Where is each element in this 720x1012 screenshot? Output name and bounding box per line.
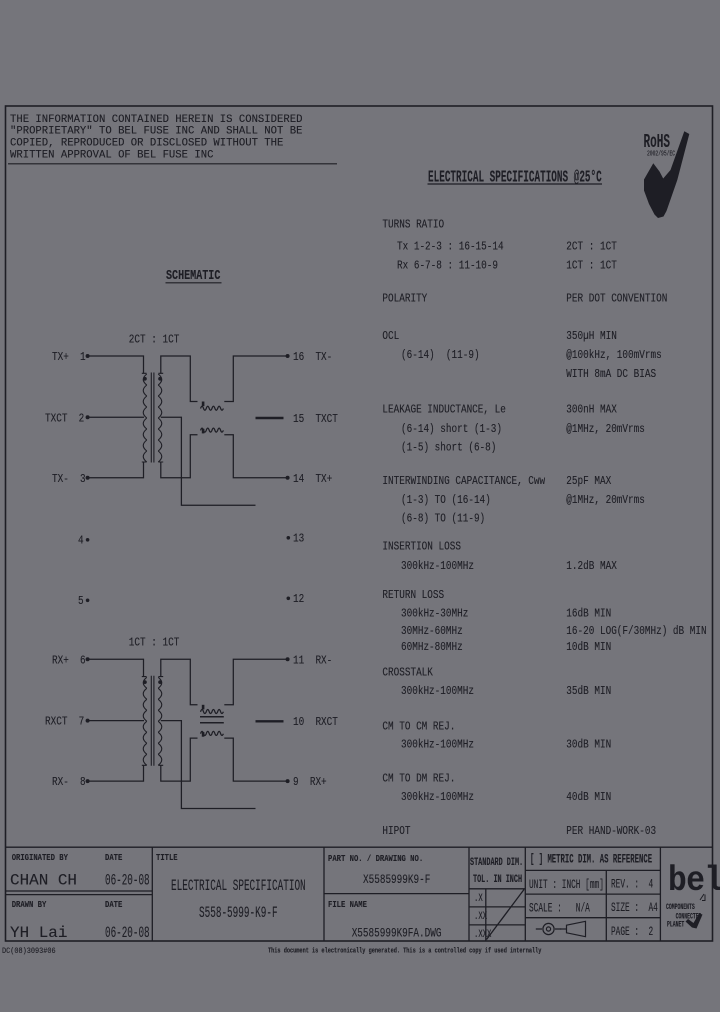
svg-text:PART NO. / DRAWING NO.: PART NO. / DRAWING NO. [328,853,423,864]
svg-text:35dB MIN: 35dB MIN [566,685,611,698]
svg-text:DATE: DATE [105,852,122,863]
svg-text:16dB MIN: 16dB MIN [566,607,611,620]
svg-text:40dB MIN: 40dB MIN [566,791,611,804]
svg-text:300kHz-30MHz: 300kHz-30MHz [401,607,468,620]
svg-text:(6-14) (11-9): (6-14) (11-9) [401,349,480,362]
svg-text:PER HAND-WORK-03: PER HAND-WORK-03 [566,825,656,838]
svg-text:SIZE : A4: SIZE : A4 [611,901,658,916]
svg-text:POLARITY: POLARITY [382,292,427,305]
svg-text:(1-3) TO (16-14): (1-3) TO (16-14) [401,494,491,507]
svg-text:2002/95/EC: 2002/95/EC [647,150,675,158]
svg-text:2CT : 1CT: 2CT : 1CT [566,240,617,253]
svg-text:(6-14) short (1-3): (6-14) short (1-3) [401,423,502,436]
svg-text:14 TX+: 14 TX+ [293,473,332,486]
svg-text:STANDARD DIM.: STANDARD DIM. [470,855,523,868]
svg-text:300nH MAX: 300nH MAX [566,403,617,416]
svg-text:TXCT 2: TXCT 2 [45,412,84,425]
svg-text:TX- 3: TX- 3 [52,473,86,486]
svg-text:16 TX-: 16 TX- [293,351,332,364]
svg-text:10 RXCT: 10 RXCT [293,716,338,729]
svg-text:.X: .X [474,892,483,905]
svg-text:RX- 8: RX- 8 [52,776,86,789]
svg-text:THE INFORMATION CONTAINED HERE: THE INFORMATION CONTAINED HEREIN IS CONS… [10,114,302,126]
svg-text:RETURN LOSS: RETURN LOSS [382,589,444,602]
svg-text:@100kHz, 100mVrms: @100kHz, 100mVrms [566,349,661,362]
svg-text:OCL: OCL [382,330,399,343]
svg-text:S558-5999-K9-F: S558-5999-K9-F [199,904,278,922]
svg-text:30MHz-60MHz: 30MHz-60MHz [401,625,463,638]
svg-text:PER DOT CONVENTION: PER DOT CONVENTION [566,292,667,305]
svg-text:350µH MIN: 350µH MIN [566,330,617,343]
svg-text:Rx 6-7-8 : 11-10-9: Rx 6-7-8 : 11-10-9 [397,259,498,272]
svg-text:12: 12 [293,593,304,606]
svg-text:TOL. IN INCH: TOL. IN INCH [473,872,522,885]
svg-text:10dB MIN: 10dB MIN [566,641,611,654]
svg-text:300kHz-100MHz: 300kHz-100MHz [401,560,474,573]
svg-text:WRITTEN APPROVAL OF BEL FUSE I: WRITTEN APPROVAL OF BEL FUSE INC [10,150,213,162]
svg-text:ELECTRICAL SPECIFICATIONS @25°: ELECTRICAL SPECIFICATIONS @25°C [428,168,602,188]
svg-text:INSERTION LOSS: INSERTION LOSS [382,540,461,553]
svg-text:1CT : 1CT: 1CT : 1CT [129,637,180,650]
svg-text:SCALE : N/A: SCALE : N/A [529,902,590,917]
svg-text:300kHz-100MHz: 300kHz-100MHz [401,791,474,804]
svg-text:PAGE : 2: PAGE : 2 [611,925,653,940]
svg-text:06-20-08: 06-20-08 [105,871,150,889]
svg-text:TITLE: TITLE [156,852,178,863]
svg-text:CM TO DM REJ.: CM TO DM REJ. [382,772,455,785]
svg-text:ELECTRICAL SPECIFICATION: ELECTRICAL SPECIFICATION [171,877,306,895]
svg-text:@1MHz, 20mVrms: @1MHz, 20mVrms [566,494,645,507]
svg-text:SCHEMATIC: SCHEMATIC [166,268,220,284]
svg-text:FILE NAME: FILE NAME [328,899,367,910]
svg-text:WITH 8mA DC BIAS: WITH 8mA DC BIAS [566,368,656,381]
svg-text:300kHz-100MHz: 300kHz-100MHz [401,685,474,698]
svg-text:TX+ 1: TX+ 1 [52,351,86,364]
svg-text:25pF MAX: 25pF MAX [566,475,611,488]
svg-text:UNIT : INCH [mm]: UNIT : INCH [mm] [529,878,604,893]
svg-text:11 RX-: 11 RX- [293,654,332,667]
svg-text:13: 13 [293,533,304,546]
svg-text:15 TXCT: 15 TXCT [293,413,338,426]
svg-text:X5585999K9-F: X5585999K9-F [363,874,430,888]
svg-text:DRAWN BY: DRAWN BY [12,899,47,910]
svg-text:PLANET: PLANET [667,921,684,929]
svg-text:COPIED, REPRODUCED OR DISCLOSE: COPIED, REPRODUCED OR DISCLOSED WITHOUT … [10,138,283,150]
svg-text:.XX: .XX [474,910,487,923]
svg-text:INTERWINDING CAPACITANCE, Cww: INTERWINDING CAPACITANCE, Cww [382,475,545,488]
svg-text:Tx 1-2-3 : 16-15-14: Tx 1-2-3 : 16-15-14 [397,240,504,253]
svg-text:bel: bel [668,860,720,900]
svg-text:This document is electronicall: This document is electronically generate… [268,947,542,955]
svg-text:X5585999K9FA.DWG: X5585999K9FA.DWG [352,927,442,941]
svg-text:(6-8) TO (11-9): (6-8) TO (11-9) [401,512,485,525]
svg-text:TURNS RATIO: TURNS RATIO [382,218,444,231]
svg-text:DC(08)3093#06: DC(08)3093#06 [2,947,56,956]
svg-text:LEAKAGE INDUCTANCE, Le: LEAKAGE INDUCTANCE, Le [382,403,505,416]
svg-text:1CT : 1CT: 1CT : 1CT [566,259,617,272]
svg-text:DATE: DATE [105,899,122,910]
svg-text:2CT : 1CT: 2CT : 1CT [129,333,180,346]
svg-text:[ ] METRIC DIM. AS REFERENCE: [ ] METRIC DIM. AS REFERENCE [530,853,652,868]
svg-text:CM TO CM REJ.: CM TO CM REJ. [382,720,455,733]
svg-text:RXCT 7: RXCT 7 [45,716,84,729]
svg-text:"PROPRIETARY" TO BEL FUSE INC: "PROPRIETARY" TO BEL FUSE INC AND SHALL … [10,126,302,138]
svg-text:CHAN CH: CHAN CH [10,871,77,889]
svg-text:06-20-08: 06-20-08 [105,924,150,942]
svg-text:REV. : 4: REV. : 4 [611,878,653,893]
svg-text:HIPOT: HIPOT [382,825,411,838]
svg-text:300kHz-100MHz: 300kHz-100MHz [401,738,474,751]
svg-text:1.2dB MAX: 1.2dB MAX [566,560,617,573]
svg-text:YH Lai: YH Lai [10,924,67,942]
svg-text:5: 5 [78,595,84,608]
svg-text:CROSSTALK: CROSSTALK [382,666,433,679]
svg-text:16-20 LOG(F/30MHz) dB MIN: 16-20 LOG(F/30MHz) dB MIN [566,625,706,638]
svg-text:60MHz-80MHz: 60MHz-80MHz [401,641,463,654]
svg-text:RX+ 6: RX+ 6 [52,654,86,667]
svg-text:.XXX: .XXX [474,928,492,941]
svg-text:ORIGINATED BY: ORIGINATED BY [12,852,69,863]
svg-text:9 RX+: 9 RX+ [293,776,327,789]
svg-text:4: 4 [78,535,84,548]
svg-text:30dB MIN: 30dB MIN [566,738,611,751]
svg-text:@1MHz, 20mVrms: @1MHz, 20mVrms [566,423,645,436]
svg-text:(1-5) short (6-8): (1-5) short (6-8) [401,441,496,454]
svg-text:COMPONENTS: COMPONENTS [666,903,695,911]
